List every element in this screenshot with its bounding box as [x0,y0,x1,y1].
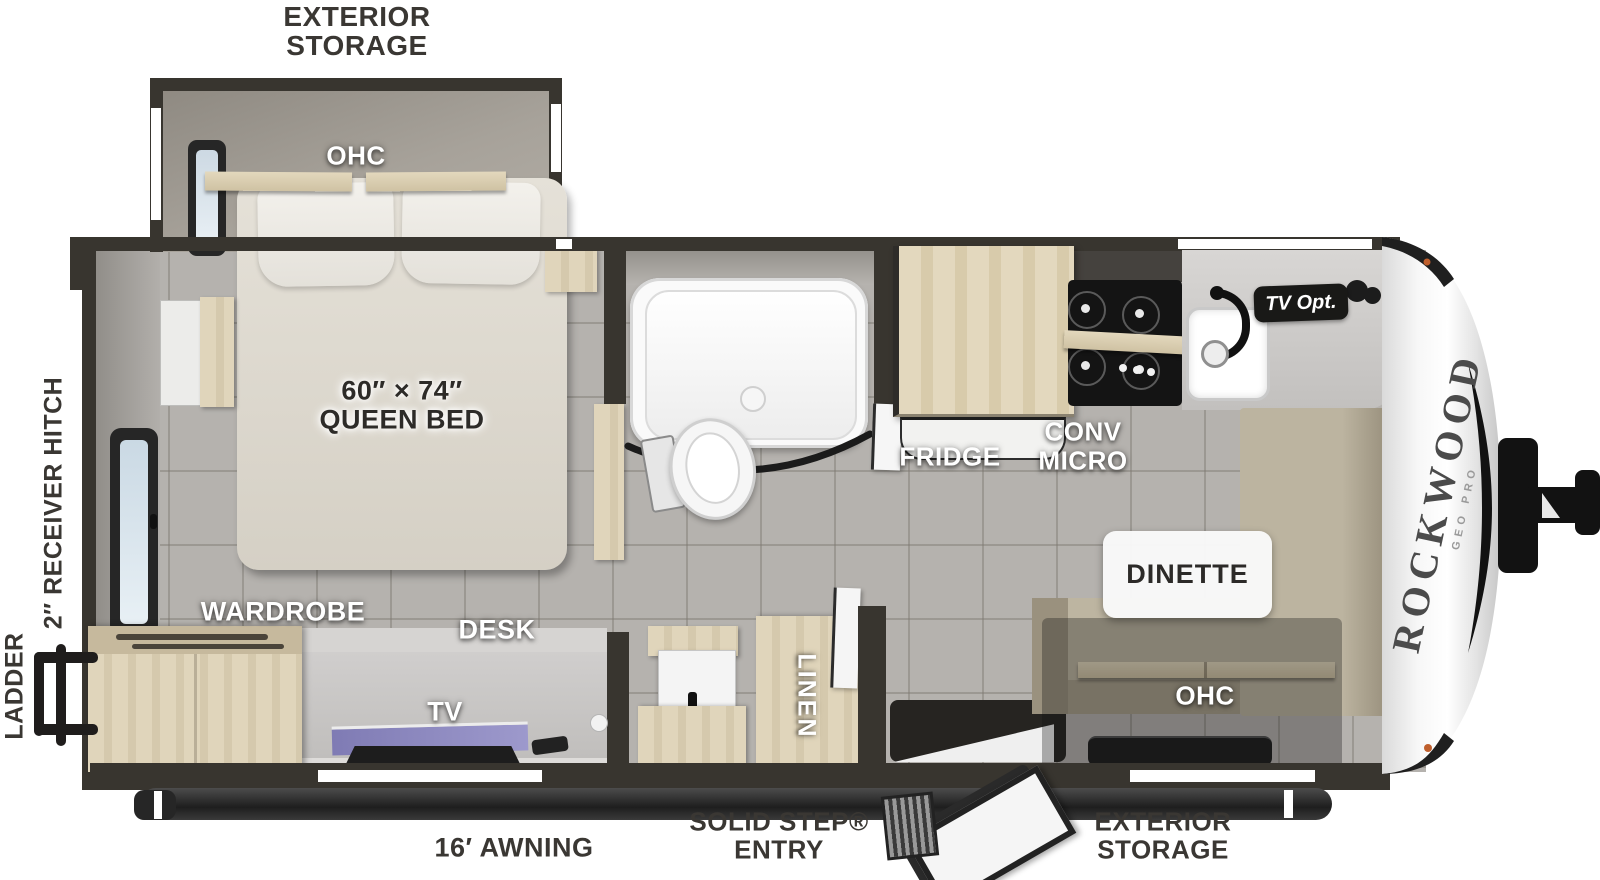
marker-light-top [1424,259,1431,266]
burner-2 [1122,296,1160,334]
bedside-cabinet [545,248,597,292]
label-awning: 16′ AWNING [435,833,594,864]
awning-bracket-gap [154,791,162,819]
toilet [638,411,766,531]
dinette-table: DINETTE [1103,531,1272,618]
marker-light-bottom [1424,744,1432,752]
label-exterior-storage-bottom-1: EXTERIOR [1095,807,1232,838]
slideout-window-slit-left [151,108,161,220]
sink-drain-knob [1201,340,1229,368]
tv-opt-label: TV Opt. [1265,290,1337,315]
cooktop-knob-1 [1119,364,1127,372]
label-bed-size: 60″ × 74″ [341,376,462,407]
hitch-pad [1575,470,1600,535]
desk-back-band [302,628,607,652]
ladder-arm-bottom [34,724,98,735]
vanity-base-cabinet [638,706,746,768]
nightstand-wood [200,297,234,407]
label-fridge: FRIDGE [899,442,1000,473]
window-latch [150,514,157,529]
label-bed-name: QUEEN BED [319,405,484,436]
label-receiver-hitch: 2″ RECEIVER HITCH [40,377,69,629]
slideout-window-slit-right [551,104,561,172]
nightstand-white [160,300,202,406]
bathtub-inner [645,290,857,440]
vanity-sink-panel [658,650,736,714]
door-stop-dot [590,714,608,732]
pillow-right [401,181,541,285]
label-wardrobe: WARDROBE [201,597,366,628]
tv-opt-badge: TV Opt. [1253,283,1348,322]
wardrobe-cabinet [88,626,302,772]
label-entry-1: SOLID STEP® [689,807,868,838]
entry-side-wall [858,606,886,772]
awning-end-gap [1284,790,1293,818]
ladder-arm-top [34,652,98,663]
bathroom-wall-right [874,244,895,408]
cooktop-knob-3 [1147,368,1155,376]
fridge-cabinet [893,246,1074,417]
cooktop-knob-2 [1133,366,1141,374]
label-entry-2: ENTRY [734,835,824,866]
label-ohc-bedroom: OHC [326,141,385,172]
label-exterior-storage-top-1: EXTERIOR [283,1,430,33]
desk-vanity-divider-wall [607,632,629,772]
rear-ladder [30,644,100,746]
kitchen-faucet-base [1210,286,1224,300]
top-wall-window-slit-bed [556,239,572,249]
bottom-window-slit-desk [318,770,542,782]
label-ladder: LADDER [1,632,30,739]
bathroom-wall-left [604,244,626,404]
bedroom-ohc-shelf-left [205,171,352,191]
wardrobe-door-split [194,654,197,772]
label-conv: CONV [1044,417,1121,448]
label-exterior-storage-bottom-2: STORAGE [1097,835,1229,866]
label-micro: MICRO [1038,446,1127,477]
label-linen: LINEN [792,654,821,739]
wardrobe-top-slot-2 [132,644,284,649]
linen-door-panel [830,588,860,689]
pillow-left [257,182,395,287]
bathtub-drain [740,386,766,412]
burner-3 [1068,348,1106,386]
wardrobe-top [88,626,302,654]
bedroom-window-slideout-glass [196,150,218,246]
burner-1 [1068,291,1106,329]
wardrobe-top-slot-1 [116,634,268,640]
storage-door-panel [1088,736,1272,766]
label-desk: DESK [458,615,535,646]
bedroom-window-rear-glass [120,440,148,624]
label-exterior-storage-top-2: STORAGE [286,30,427,62]
entry-step-tread [881,791,939,860]
bedroom-ohc-shelf-right [366,172,506,192]
bottom-window-slit-dinette [1130,770,1315,782]
dinette-label: DINETTE [1126,559,1249,590]
floorplan-diagram: DINETTE ROC [0,0,1600,880]
label-tv: TV [427,697,463,728]
label-ohc-dinette: OHC [1175,681,1234,712]
